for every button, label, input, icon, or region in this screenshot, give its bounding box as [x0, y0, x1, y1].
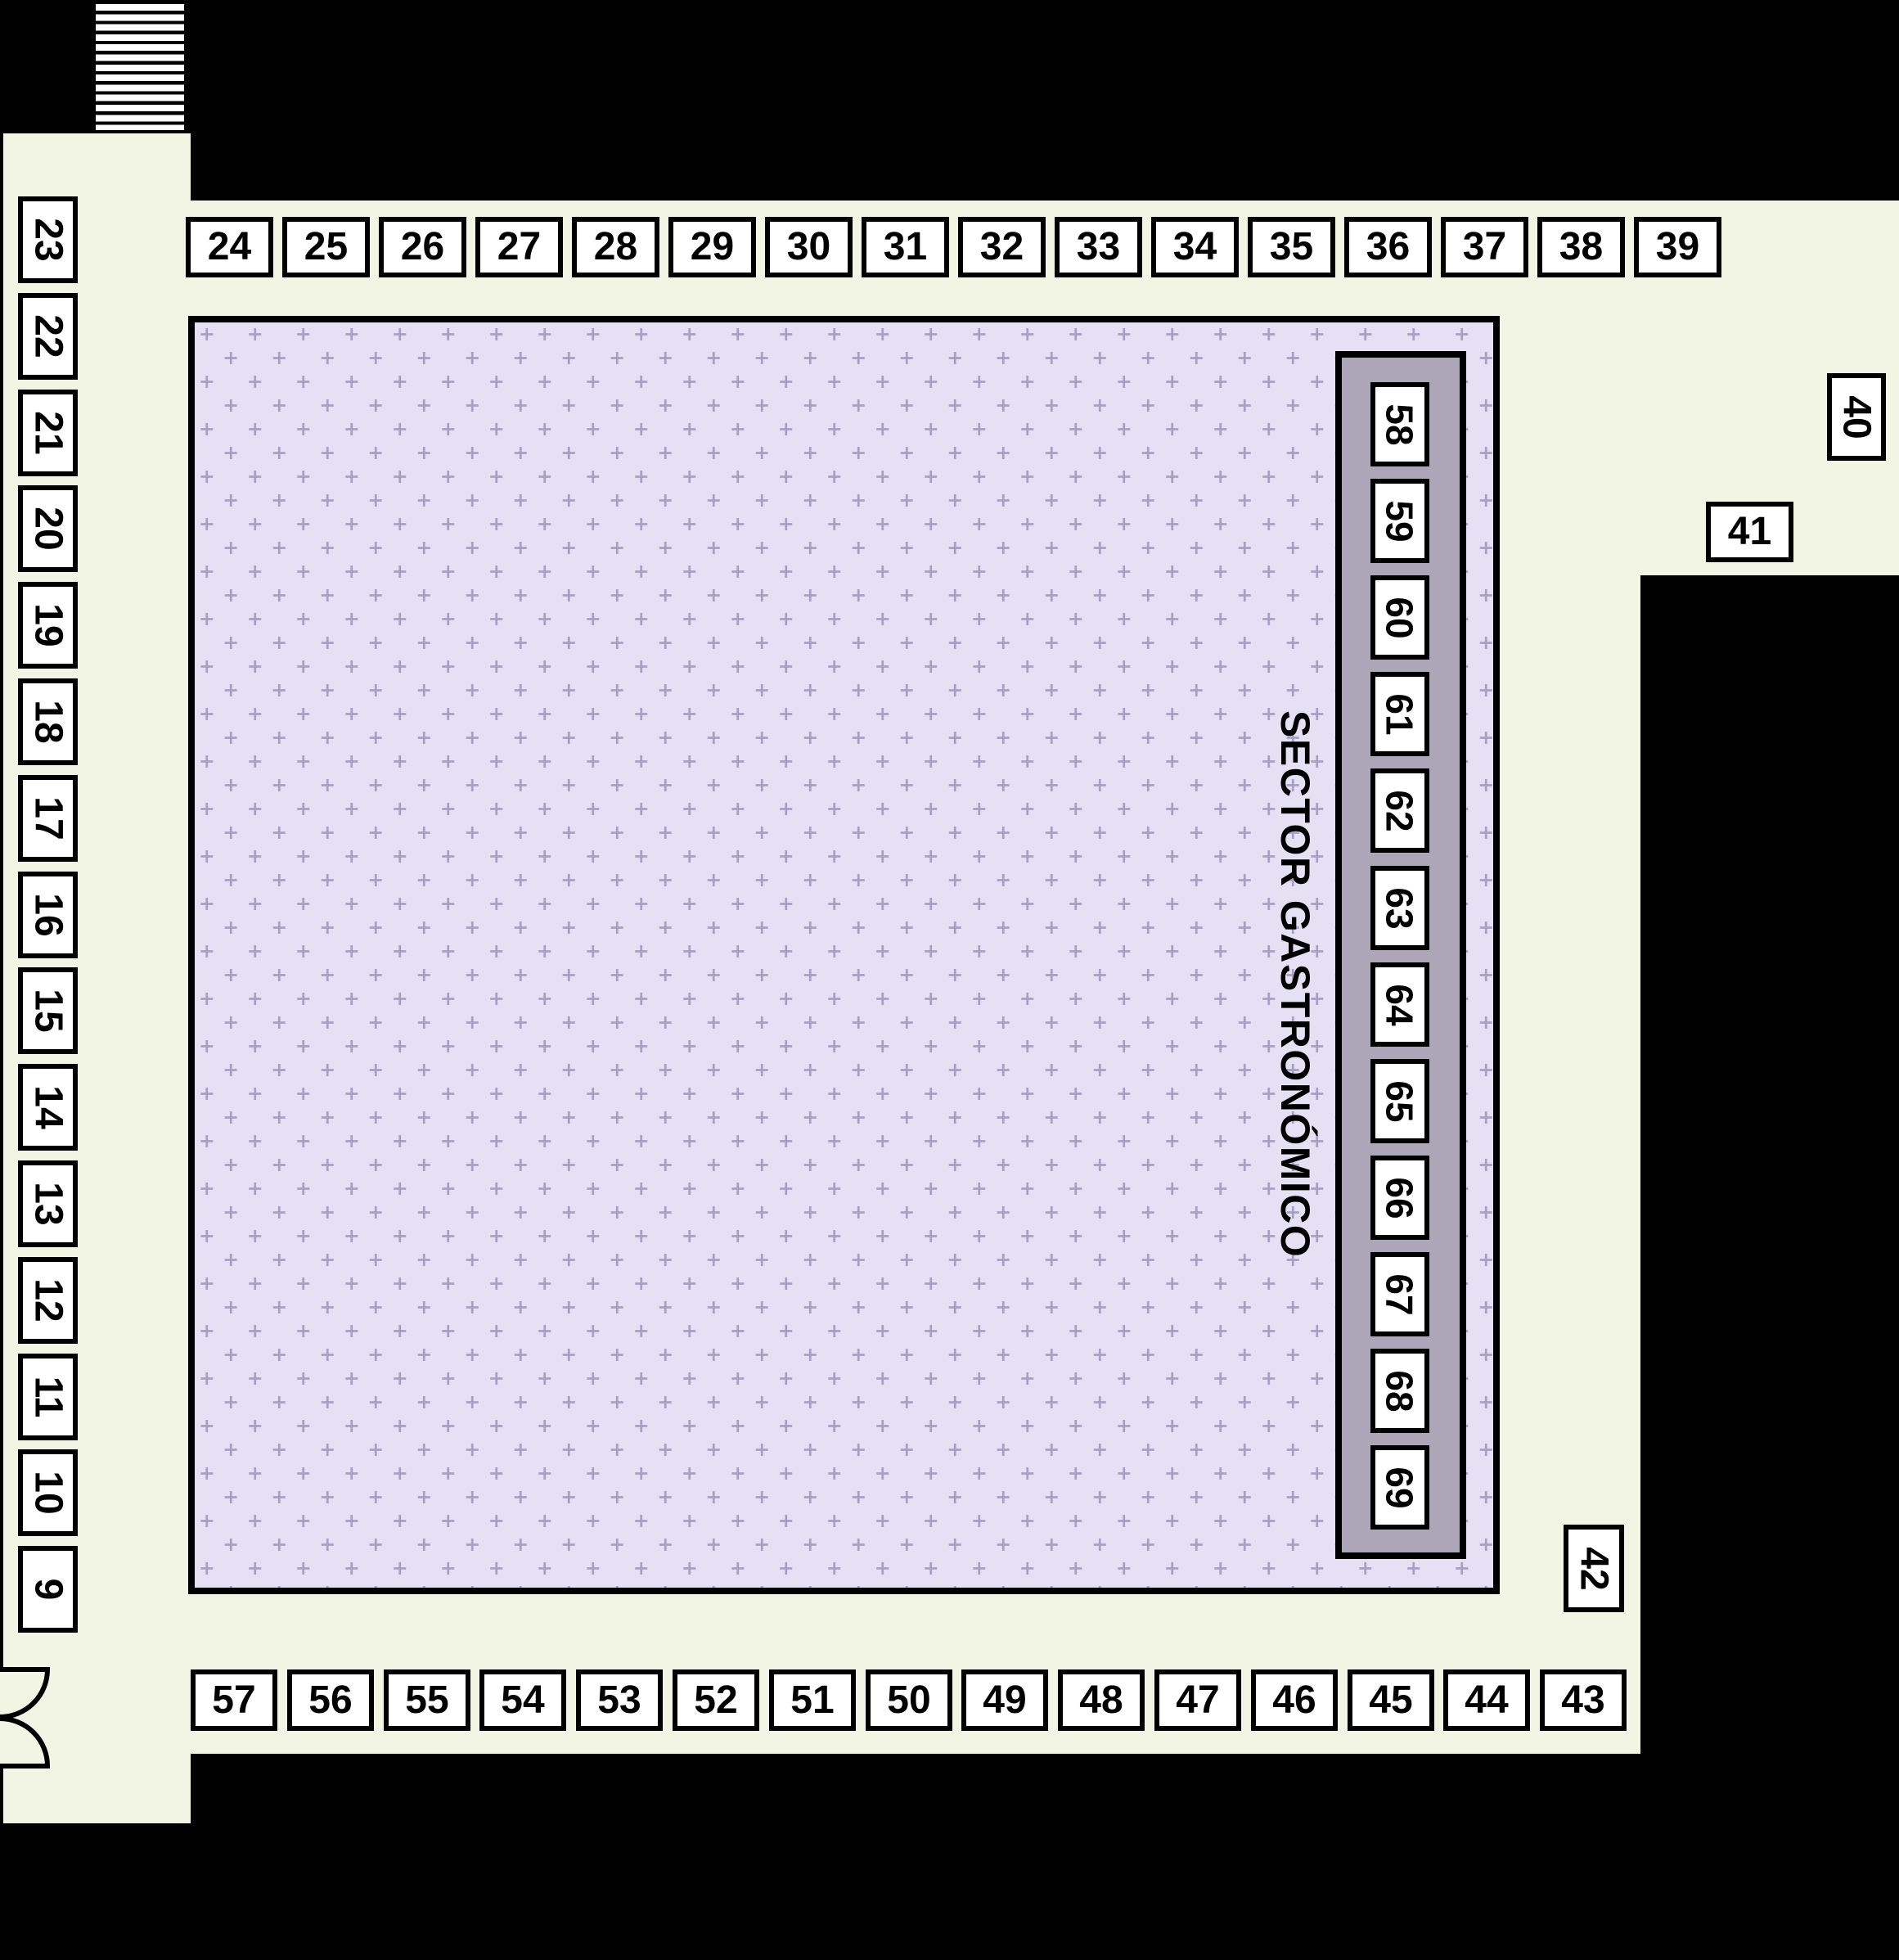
stall-48: 48 — [1058, 1669, 1145, 1731]
stall-15: 15 — [18, 967, 78, 1054]
stall-26: 26 — [379, 217, 466, 277]
stall-64: 64 — [1370, 962, 1429, 1047]
stall-22: 22 — [18, 293, 78, 380]
stall-label: 64 — [1381, 984, 1419, 1025]
stall-label: 47 — [1176, 1681, 1219, 1720]
stall-50: 50 — [866, 1669, 952, 1731]
stall-53: 53 — [576, 1669, 663, 1731]
stall-label: 69 — [1381, 1467, 1419, 1508]
stall-label: 62 — [1381, 790, 1419, 831]
stall-label: 27 — [497, 228, 541, 267]
stall-21: 21 — [18, 390, 78, 476]
stall-34: 34 — [1151, 217, 1239, 277]
stall-label: 28 — [594, 228, 637, 267]
stall-label: 56 — [308, 1681, 352, 1720]
stall-65: 65 — [1370, 1059, 1429, 1143]
stall-69: 69 — [1370, 1445, 1429, 1530]
stall-45: 45 — [1348, 1669, 1434, 1731]
stall-49: 49 — [961, 1669, 1048, 1731]
stall-label: 53 — [597, 1681, 641, 1720]
stall-label: 10 — [28, 1471, 67, 1514]
stall-14: 14 — [18, 1064, 78, 1151]
stall-33: 33 — [1055, 217, 1142, 277]
stall-label: 67 — [1381, 1273, 1419, 1315]
stall-label: 54 — [501, 1681, 544, 1720]
wall-left-upper — [0, 133, 3, 1669]
stall-label: 9 — [28, 1579, 67, 1601]
stall-label: 41 — [1728, 512, 1771, 552]
stall-label: 30 — [787, 228, 830, 267]
stall-label: 23 — [28, 218, 67, 261]
stall-68: 68 — [1370, 1349, 1429, 1433]
stall-label: 44 — [1465, 1681, 1508, 1720]
stall-label: 61 — [1381, 693, 1419, 735]
stall-label: 17 — [28, 796, 67, 840]
stall-40: 40 — [1827, 373, 1886, 461]
stall-67: 67 — [1370, 1252, 1429, 1336]
stall-44: 44 — [1443, 1669, 1530, 1731]
stall-label: 13 — [28, 1182, 67, 1225]
stall-label: 58 — [1381, 403, 1419, 445]
stall-11: 11 — [18, 1354, 78, 1440]
stall-39: 39 — [1634, 217, 1721, 277]
stall-label: 11 — [29, 1377, 68, 1418]
stall-66: 66 — [1370, 1156, 1429, 1240]
sector-title: SECTOR GASTRONÓMICO — [1273, 710, 1317, 1258]
stall-16: 16 — [18, 872, 78, 958]
stall-label: 55 — [405, 1681, 448, 1720]
stall-24: 24 — [186, 217, 273, 277]
stall-label: 42 — [1574, 1547, 1613, 1590]
stall-9: 9 — [18, 1546, 78, 1633]
stall-56: 56 — [287, 1669, 374, 1731]
stall-63: 63 — [1370, 866, 1429, 950]
stall-37: 37 — [1441, 217, 1528, 277]
stall-label: 33 — [1077, 228, 1120, 267]
stall-label: 46 — [1272, 1681, 1316, 1720]
stall-23: 23 — [18, 196, 78, 283]
stall-55: 55 — [384, 1669, 470, 1731]
stall-label: 35 — [1270, 228, 1313, 267]
stall-label: 22 — [28, 314, 67, 358]
stall-label: 68 — [1381, 1370, 1419, 1412]
stall-label: 50 — [887, 1681, 930, 1720]
stall-54: 54 — [479, 1669, 566, 1731]
stall-31: 31 — [862, 217, 949, 277]
stall-label: 60 — [1381, 597, 1419, 638]
stall-58: 58 — [1370, 382, 1429, 466]
stall-label: 21 — [28, 411, 67, 454]
stall-13: 13 — [18, 1160, 78, 1247]
stall-42: 42 — [1564, 1525, 1624, 1612]
stall-46: 46 — [1251, 1669, 1338, 1731]
stall-label: 57 — [212, 1681, 255, 1720]
stall-label: 29 — [691, 228, 734, 267]
stall-label: 39 — [1656, 228, 1699, 267]
stall-label: 59 — [1381, 500, 1419, 542]
stall-41: 41 — [1706, 502, 1793, 562]
stall-label: 14 — [28, 1085, 67, 1129]
stall-label: 63 — [1381, 887, 1419, 929]
stall-label: 66 — [1381, 1177, 1419, 1219]
stall-label: 65 — [1381, 1080, 1419, 1122]
stall-label: 36 — [1366, 228, 1410, 267]
stall-61: 61 — [1370, 672, 1429, 756]
stall-20: 20 — [18, 485, 78, 572]
stall-43: 43 — [1540, 1669, 1627, 1731]
stall-label: 20 — [28, 507, 67, 550]
stall-36: 36 — [1344, 217, 1432, 277]
stall-25: 25 — [282, 217, 370, 277]
stall-19: 19 — [18, 582, 78, 669]
stall-label: 24 — [208, 228, 251, 267]
stall-17: 17 — [18, 775, 78, 862]
stall-label: 51 — [790, 1681, 834, 1720]
stall-label: 32 — [980, 228, 1024, 267]
stall-10: 10 — [18, 1449, 78, 1536]
stall-18: 18 — [18, 678, 78, 765]
stall-label: 25 — [304, 228, 348, 267]
stall-59: 59 — [1370, 479, 1429, 563]
stall-label: 31 — [884, 228, 927, 267]
stall-32: 32 — [958, 217, 1046, 277]
stall-label: 40 — [1837, 395, 1876, 439]
stall-label: 48 — [1079, 1681, 1123, 1720]
stall-label: 26 — [401, 228, 444, 267]
stall-51: 51 — [769, 1669, 856, 1731]
stall-label: 16 — [28, 893, 67, 936]
stall-12: 12 — [18, 1257, 78, 1344]
stall-label: 37 — [1463, 228, 1506, 267]
stall-label: 19 — [28, 603, 67, 647]
stall-27: 27 — [475, 217, 563, 277]
stall-38: 38 — [1537, 217, 1625, 277]
stall-47: 47 — [1154, 1669, 1241, 1731]
wall-left-lower — [0, 1765, 3, 1823]
stall-label: 49 — [983, 1681, 1026, 1720]
stall-label: 38 — [1559, 228, 1603, 267]
venue-floor-plan: { "page": { "type": "venue floor plan" }… — [0, 0, 1899, 1960]
stall-label: 15 — [28, 989, 67, 1032]
stall-62: 62 — [1370, 768, 1429, 853]
stall-label: 18 — [28, 700, 67, 743]
stall-52: 52 — [673, 1669, 759, 1731]
stall-30: 30 — [765, 217, 853, 277]
stall-29: 29 — [668, 217, 756, 277]
stall-label: 43 — [1561, 1681, 1604, 1720]
stall-label: 52 — [694, 1681, 737, 1720]
stall-35: 35 — [1248, 217, 1335, 277]
double-door-icon — [0, 1665, 57, 1772]
stall-60: 60 — [1370, 575, 1429, 660]
stall-label: 34 — [1173, 228, 1217, 267]
stall-57: 57 — [191, 1669, 277, 1731]
stall-28: 28 — [572, 217, 659, 277]
stall-label: 45 — [1369, 1681, 1412, 1720]
stall-label: 12 — [28, 1278, 67, 1322]
stairs-icon — [96, 4, 184, 130]
